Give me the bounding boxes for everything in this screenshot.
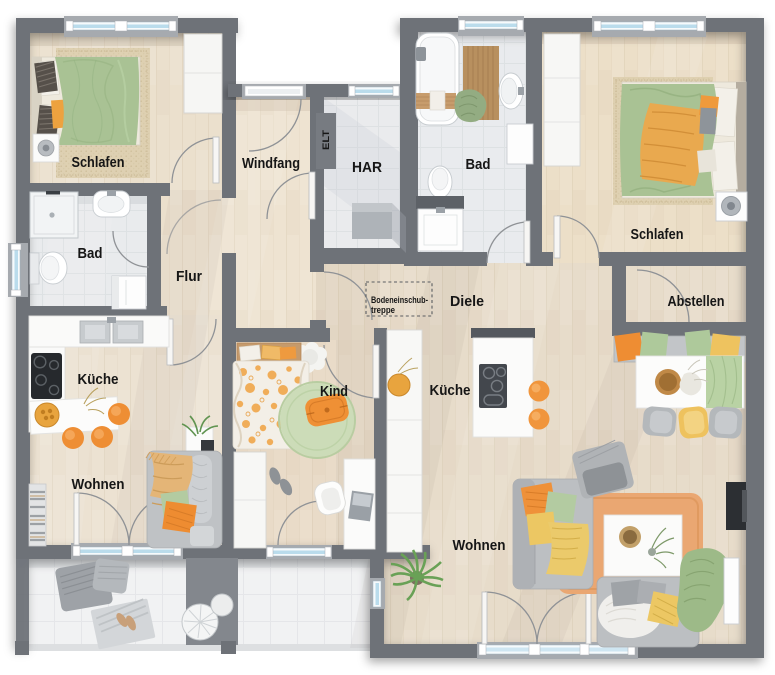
svg-text:HAR: HAR	[352, 159, 382, 176]
svg-text:Schlafen: Schlafen	[72, 154, 125, 171]
svg-text:treppe: treppe	[371, 305, 395, 316]
svg-text:ELT: ELT	[321, 130, 332, 150]
svg-text:Diele: Diele	[450, 293, 484, 310]
svg-text:Bad: Bad	[78, 245, 103, 262]
svg-text:Schlafen: Schlafen	[631, 226, 684, 243]
svg-text:Wohnen: Wohnen	[72, 476, 125, 493]
svg-text:Küche: Küche	[78, 371, 119, 388]
svg-text:Flur: Flur	[176, 268, 202, 285]
svg-text:Abstellen: Abstellen	[668, 293, 725, 310]
svg-text:Kind: Kind	[320, 383, 348, 400]
svg-text:Windfang: Windfang	[242, 155, 300, 172]
svg-text:Bad: Bad	[466, 156, 491, 173]
svg-text:Küche: Küche	[430, 382, 471, 399]
svg-text:Wohnen: Wohnen	[453, 537, 506, 554]
